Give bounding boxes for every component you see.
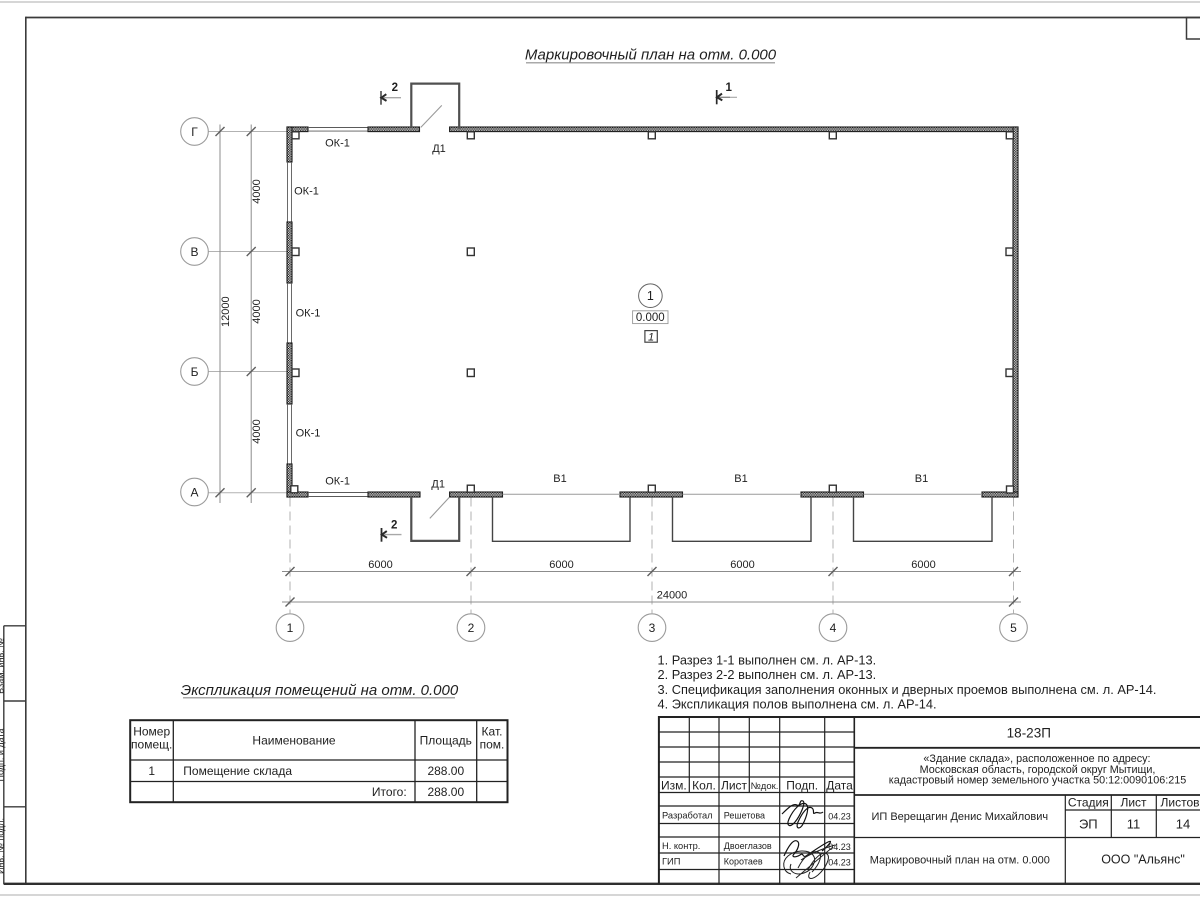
svg-text:11: 11: [1127, 817, 1141, 832]
svg-text:18-23П: 18-23П: [1007, 726, 1051, 741]
svg-text:1. Разрез 1-1 выполнен см. л.: 1. Разрез 1-1 выполнен см. л. АР-13.: [658, 652, 877, 667]
svg-text:Лист: Лист: [721, 779, 748, 793]
svg-text:Г: Г: [191, 125, 198, 139]
svg-text:Стадия: Стадия: [1068, 796, 1109, 810]
svg-text:Дата: Дата: [826, 779, 853, 793]
svg-text:3: 3: [649, 621, 656, 635]
svg-text:4000: 4000: [251, 299, 263, 323]
svg-text:14: 14: [1176, 817, 1190, 832]
svg-text:Кат.: Кат.: [482, 725, 503, 739]
svg-text:4000: 4000: [251, 179, 263, 203]
svg-text:ОК-1: ОК-1: [296, 427, 321, 439]
svg-text:Номер: Номер: [133, 725, 170, 739]
svg-text:кадастровый номер земельного у: кадастровый номер земельного участка 50:…: [889, 775, 1186, 787]
svg-text:2: 2: [391, 519, 397, 531]
svg-text:Помещение склада: Помещение склада: [183, 764, 292, 778]
svg-text:1: 1: [287, 621, 294, 635]
svg-text:0.000: 0.000: [636, 312, 665, 324]
svg-text:Подп.: Подп.: [786, 779, 818, 793]
svg-text:3. Спецификация заполнения око: 3. Спецификация заполнения оконных и две…: [658, 682, 1157, 697]
svg-text:Лист: Лист: [1120, 796, 1147, 810]
svg-text:Б: Б: [191, 365, 199, 379]
svg-text:2. Разрез 2-2 выполнен см. л.: 2. Разрез 2-2 выполнен см. л. АР-13.: [658, 667, 877, 682]
svg-text:Коротаев: Коротаев: [724, 857, 763, 867]
svg-text:Маркировочный план на отм. 0.0: Маркировочный план на отм. 0.000: [525, 47, 777, 64]
svg-text:Решетова: Решетова: [724, 811, 765, 821]
svg-text:Изм.: Изм.: [661, 779, 687, 793]
svg-text:2: 2: [468, 621, 475, 635]
svg-text:2: 2: [392, 82, 398, 94]
svg-text:помещ.: помещ.: [131, 738, 172, 752]
svg-text:12000: 12000: [220, 296, 232, 327]
svg-text:Д1: Д1: [432, 143, 446, 155]
svg-text:В1: В1: [553, 473, 566, 485]
svg-text:ОК-1: ОК-1: [296, 308, 321, 320]
svg-text:288.00: 288.00: [427, 764, 464, 778]
svg-text:пом.: пом.: [480, 738, 505, 752]
svg-text:288.00: 288.00: [427, 785, 464, 799]
svg-text:№док.: №док.: [751, 781, 779, 792]
svg-text:4000: 4000: [251, 419, 263, 443]
svg-text:ОК-1: ОК-1: [294, 186, 319, 198]
svg-text:А: А: [190, 486, 198, 500]
svg-text:В: В: [190, 245, 198, 259]
svg-text:4: 4: [830, 621, 837, 635]
svg-text:Наименование: Наименование: [252, 734, 336, 748]
svg-text:6000: 6000: [911, 559, 935, 571]
svg-text:6000: 6000: [730, 559, 754, 571]
svg-text:Кол.: Кол.: [692, 779, 716, 793]
svg-text:1: 1: [648, 331, 654, 343]
svg-text:5: 5: [1010, 621, 1017, 635]
svg-text:1: 1: [148, 764, 155, 778]
svg-text:ОК-1: ОК-1: [325, 475, 350, 487]
svg-text:ИП Верещагин Денис Михайлович: ИП Верещагин Денис Михайлович: [871, 811, 1048, 823]
svg-text:Маркировочный план на отм. 0.0: Маркировочный план на отм. 0.000: [870, 855, 1050, 867]
svg-text:Инв. № подл.: Инв. № подл.: [0, 818, 5, 874]
svg-text:Итого:: Итого:: [372, 785, 407, 799]
svg-text:04.23: 04.23: [828, 812, 851, 822]
svg-text:Разработал: Разработал: [662, 811, 713, 821]
svg-text:Экспликация помещений на отм.: Экспликация помещений на отм. 0.000: [181, 682, 459, 699]
svg-text:В1: В1: [915, 473, 928, 485]
svg-text:ООО "Альянс": ООО "Альянс": [1101, 853, 1185, 867]
svg-text:В1: В1: [734, 473, 747, 485]
svg-text:24000: 24000: [657, 590, 688, 602]
svg-text:Взам. инв. №: Взам. инв. №: [0, 638, 5, 694]
svg-text:Д1: Д1: [431, 479, 445, 491]
svg-text:ГИП: ГИП: [662, 857, 680, 867]
svg-text:6000: 6000: [549, 559, 573, 571]
svg-text:Н. контр.: Н. контр.: [662, 841, 700, 851]
svg-text:Подп. и дата: Подп. и дата: [0, 728, 5, 781]
svg-text:Двоеглазов: Двоеглазов: [724, 841, 772, 851]
svg-text:4. Экспликация полов выполнена: 4. Экспликация полов выполнена см. л. АР…: [658, 697, 937, 712]
svg-text:1: 1: [647, 289, 654, 303]
svg-text:ЭП: ЭП: [1079, 817, 1098, 832]
svg-text:04.23: 04.23: [828, 842, 851, 852]
svg-text:6000: 6000: [368, 559, 392, 571]
svg-text:04.23: 04.23: [828, 858, 851, 868]
svg-text:1: 1: [725, 82, 732, 94]
svg-text:Площадь: Площадь: [420, 734, 472, 748]
svg-text:Листов: Листов: [1161, 796, 1200, 810]
svg-text:ОК-1: ОК-1: [325, 138, 350, 150]
